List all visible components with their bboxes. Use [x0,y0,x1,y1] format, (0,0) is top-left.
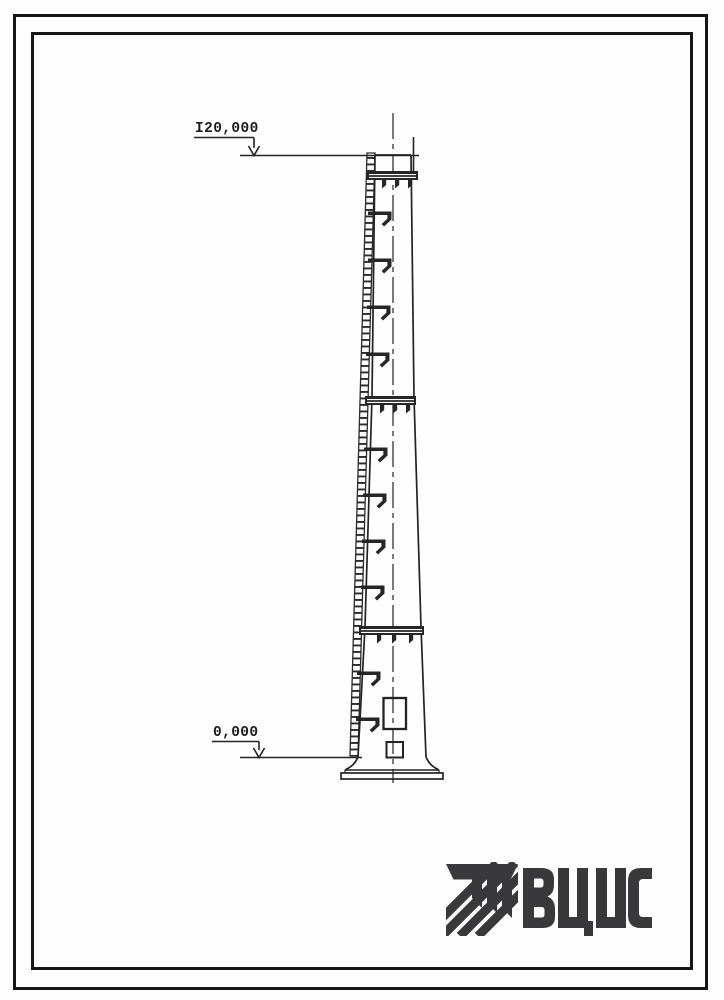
logo-wordmark [523,868,652,936]
flue-opening [384,698,407,729]
drawing-sheet: { "drawing": { "subject": "chimney-eleva… [0,0,724,1000]
elevation-mark-top: I20,000 [194,121,419,156]
logo: ВЦИС [424,863,652,936]
elevation-mark-bottom: 0,000 [212,725,362,758]
elevation-bottom-label: 0,000 [213,725,259,741]
chimney-technical-drawing: I20,000 0,000 ВЦИС [0,0,724,1000]
door-opening [387,742,404,758]
base-plinth [341,757,443,779]
elevation-top-label: I20,000 [195,121,259,137]
